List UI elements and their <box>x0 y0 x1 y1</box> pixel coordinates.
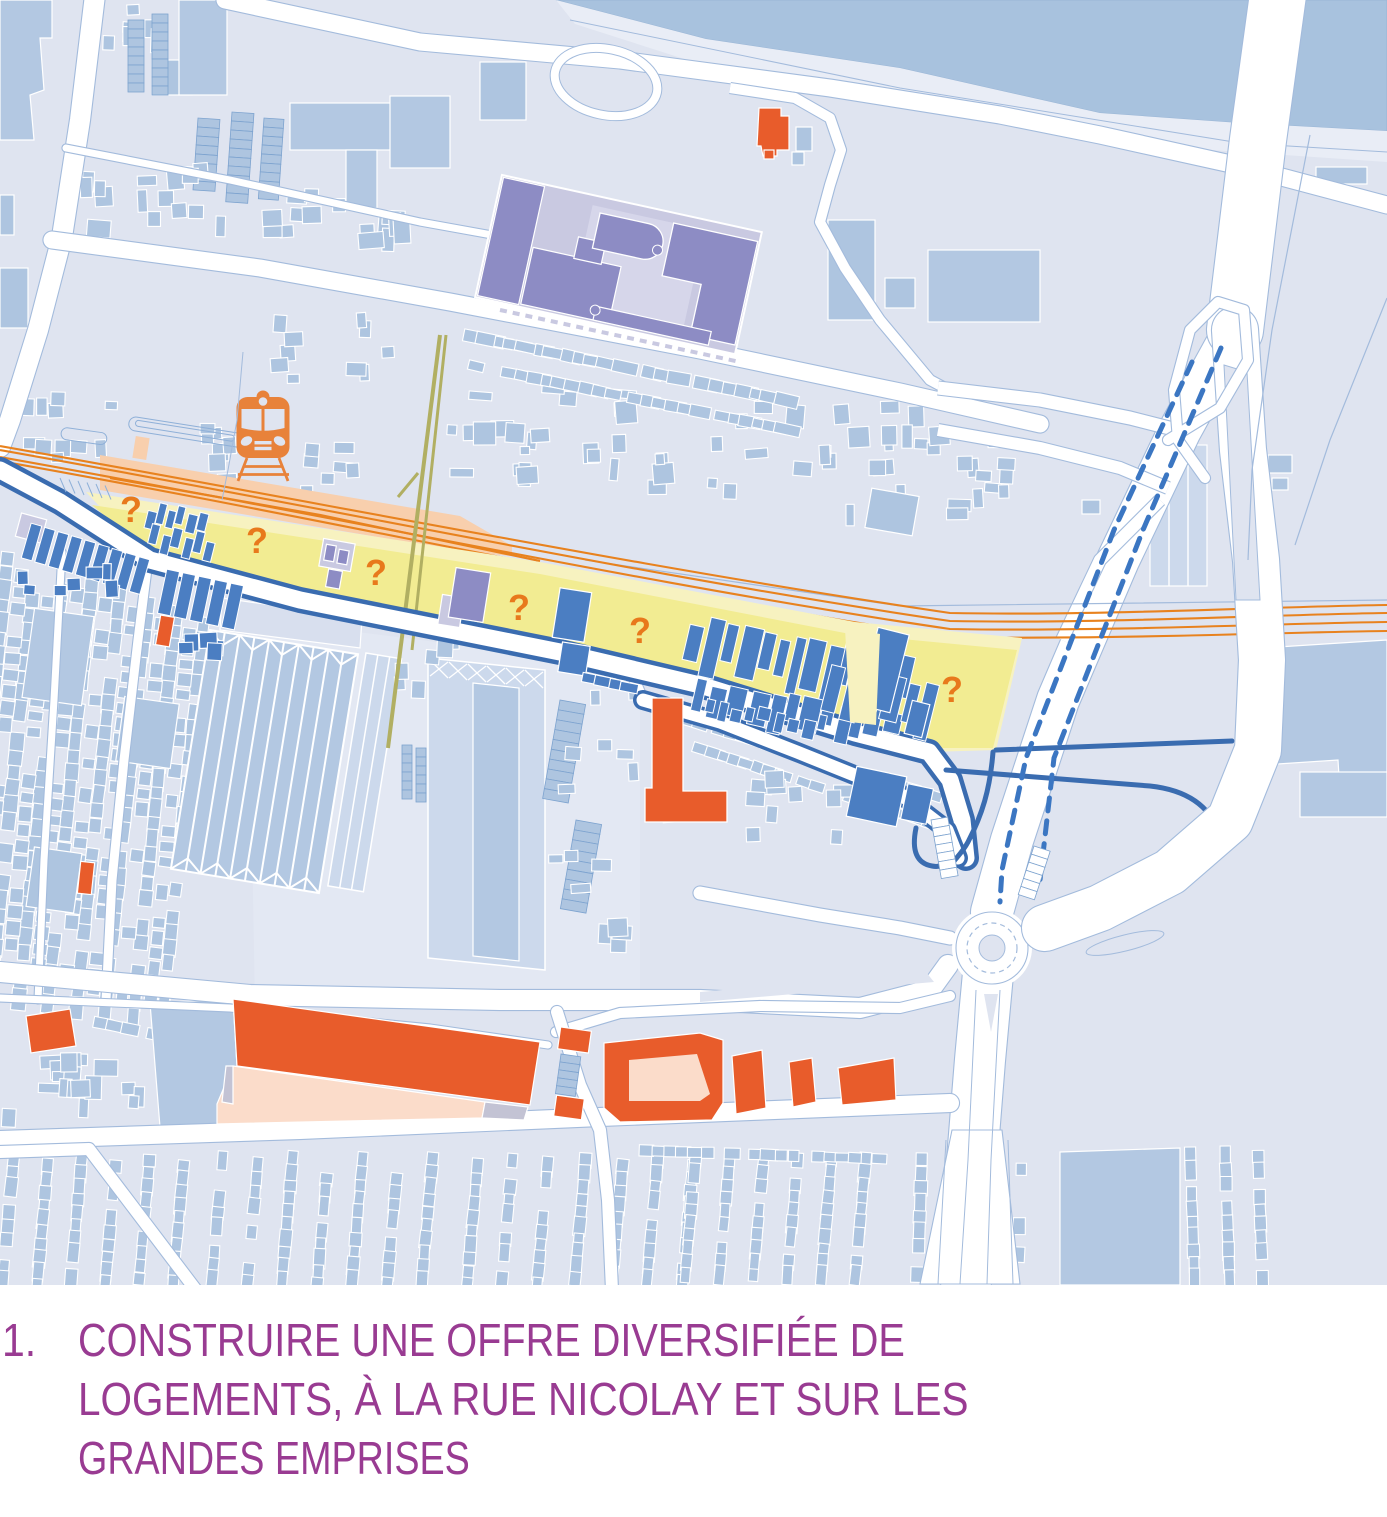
svg-text:?: ? <box>365 552 387 593</box>
svg-text:?: ? <box>120 489 142 530</box>
svg-text:1.: 1. <box>2 1316 36 1367</box>
svg-text:CONSTRUIRE UNE OFFRE DIVERSIFI: CONSTRUIRE UNE OFFRE DIVERSIFIÉE DE <box>78 1315 905 1366</box>
svg-text:LOGEMENTS, À LA RUE NICOLAY ET: LOGEMENTS, À LA RUE NICOLAY ET SUR LES <box>78 1375 969 1426</box>
svg-text:?: ? <box>508 587 530 628</box>
svg-text:?: ? <box>941 669 963 710</box>
svg-text:?: ? <box>246 520 268 561</box>
svg-text:?: ? <box>629 610 651 651</box>
svg-text:GRANDES EMPRISES: GRANDES EMPRISES <box>78 1432 470 1483</box>
